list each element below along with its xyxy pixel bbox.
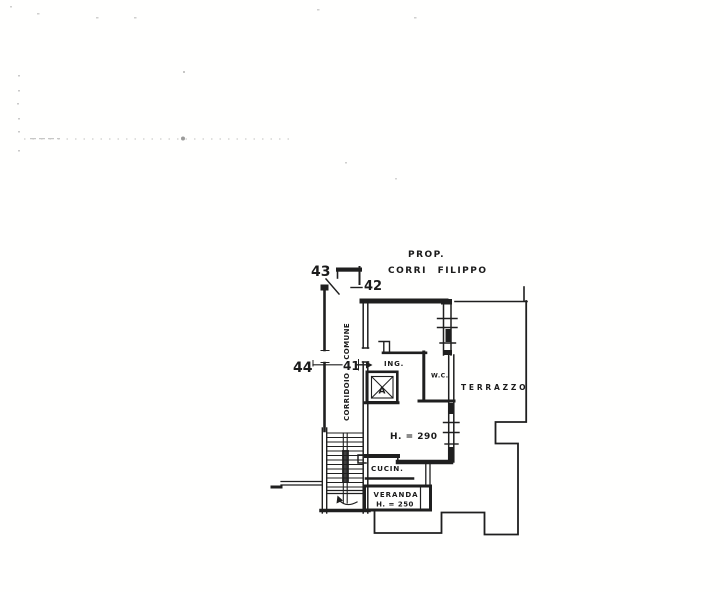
- marker-42: 42: [364, 279, 382, 294]
- floor-plan-drawing: PROP. CORRI FILIPPO 43 42 44 41 CORRIDOI…: [0, 0, 724, 592]
- terrace-label: TERRAZZO: [461, 383, 528, 392]
- stair-ink-blob: [342, 450, 349, 483]
- unit-markers: 43 42 44 41: [293, 264, 382, 376]
- wall-right-fill-1: [446, 329, 452, 342]
- property-label-line1: PROP.: [408, 250, 445, 260]
- apartment-walls: [358, 299, 459, 513]
- entry-door-jamb: [379, 342, 390, 353]
- veranda-label: VERANDA: [373, 491, 418, 499]
- corridor-label: CORRIDOIO COMUNE: [343, 323, 351, 421]
- marker-43: 43: [311, 264, 330, 280]
- elevator-label: A: [379, 387, 386, 397]
- property-label-line2: CORRI FILIPPO: [388, 266, 488, 276]
- wall-right-fill-2: [443, 350, 452, 355]
- scanned-floor-plan-page: PROP. CORRI FILIPPO 43 42 44 41 CORRIDOI…: [0, 0, 724, 592]
- scan-artifacts: [10, 6, 417, 180]
- elevator-shaft: A: [365, 372, 398, 403]
- property-caption: PROP. CORRI FILIPPO: [388, 250, 488, 276]
- veranda-height-label: H. = 250: [376, 501, 414, 509]
- stairwell: [272, 428, 369, 513]
- wall-right-fill-3: [448, 403, 454, 414]
- kitchen-label: CUCIN.: [371, 464, 404, 473]
- wc-label: W.C.: [431, 373, 449, 380]
- main-room-height-label: H. = 290: [390, 432, 438, 442]
- common-corridor: CORRIDOIO COMUNE: [321, 285, 352, 432]
- marker-44: 44: [293, 360, 313, 376]
- entrance-label: ING.: [384, 360, 404, 368]
- parapet-bar: [336, 268, 362, 272]
